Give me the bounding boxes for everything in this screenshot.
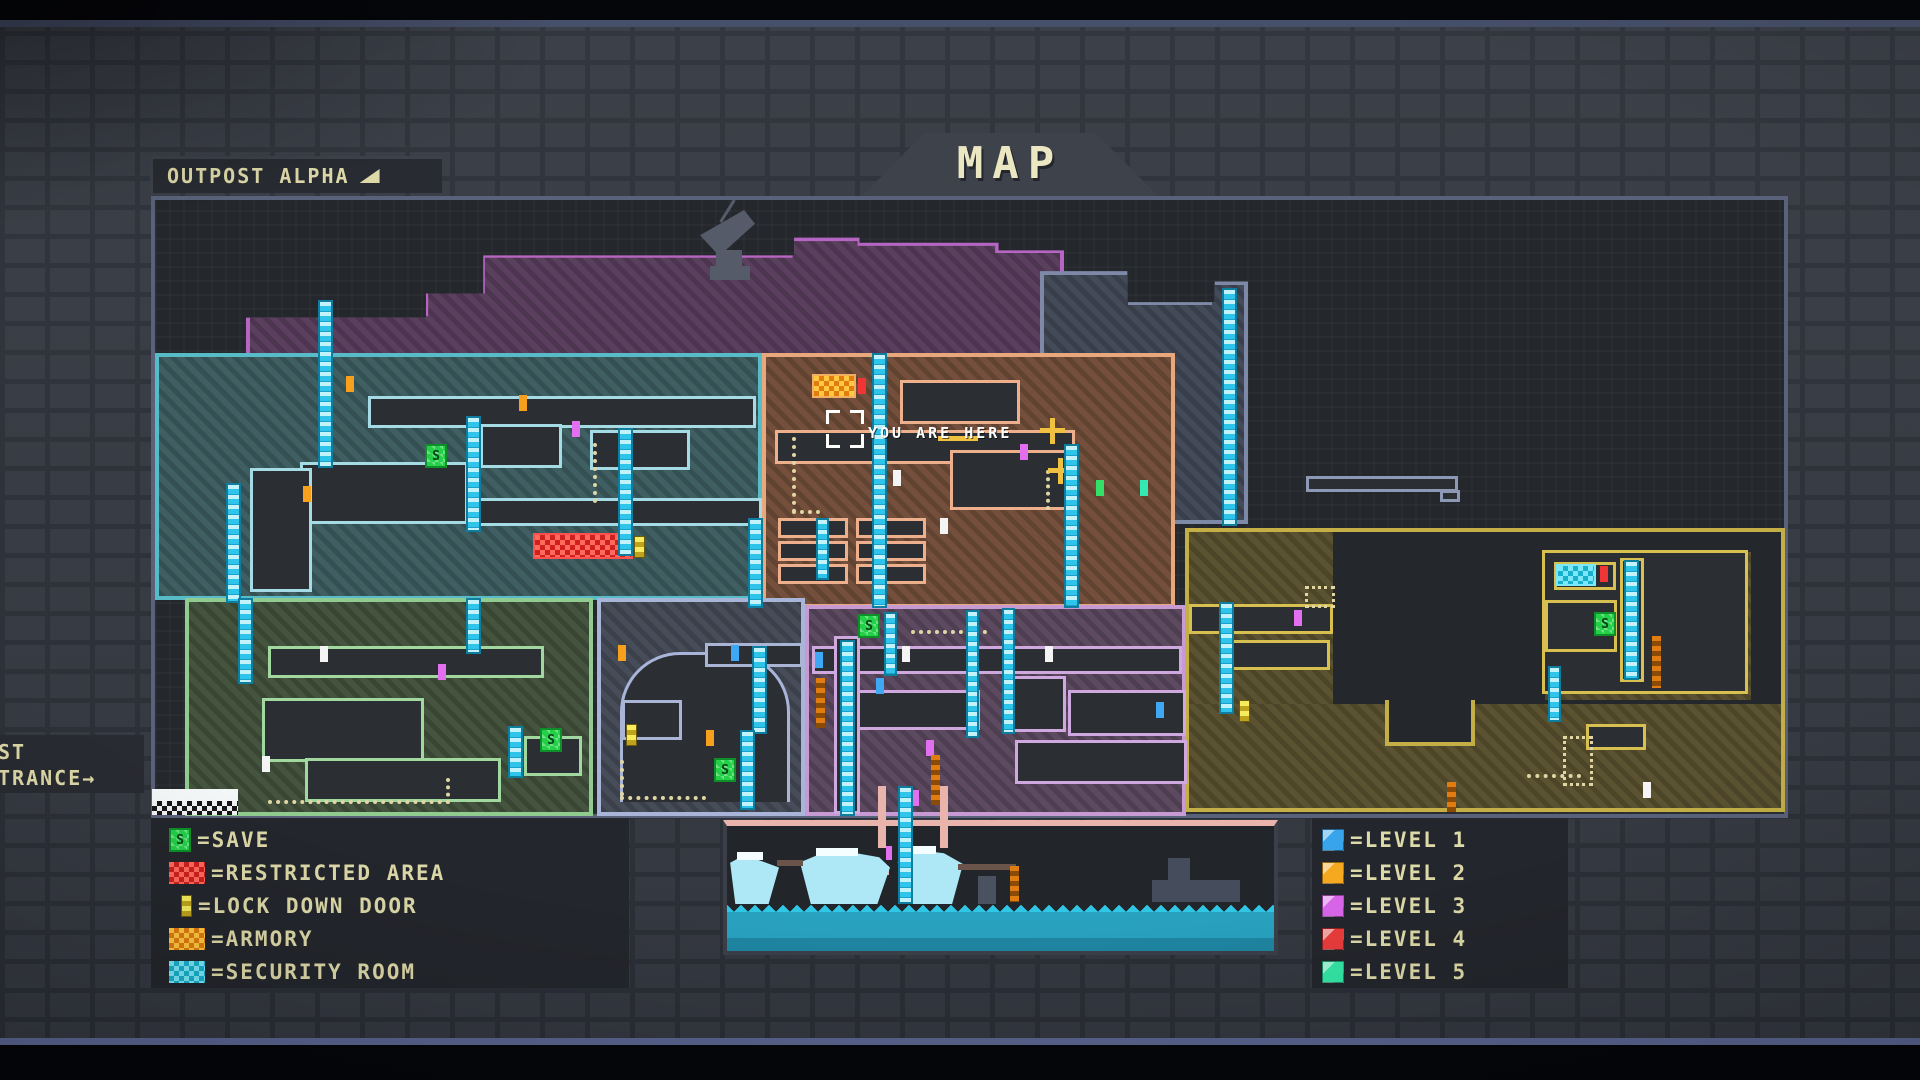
iceberg-cap <box>737 852 763 860</box>
dock-shaft-wall <box>940 786 948 848</box>
legend-item-level3: =LEVEL 3 <box>1322 894 1568 918</box>
door-gap <box>262 756 270 772</box>
door-level1 <box>731 645 739 661</box>
antenna-platform <box>1306 476 1458 492</box>
door-level2 <box>519 395 527 411</box>
save-point-icon: S <box>714 758 736 782</box>
ladder <box>226 483 241 603</box>
ladder <box>816 518 829 580</box>
lock-down-door-icon <box>181 895 192 917</box>
legend-label: =LEVEL 2 <box>1350 861 1467 885</box>
door-gap <box>1643 782 1651 798</box>
objective-marker <box>1040 428 1065 433</box>
door-gap <box>320 646 328 662</box>
east-canyon-floor <box>1189 704 1781 808</box>
dock-ladder <box>1010 866 1019 902</box>
service-pipe <box>1447 782 1456 812</box>
door-level3 <box>886 846 892 860</box>
door-gap <box>893 470 901 486</box>
door-level3 <box>1020 444 1028 460</box>
map-room <box>778 518 848 538</box>
ladder <box>1064 444 1079 608</box>
ladder <box>740 730 755 810</box>
route-path <box>593 443 597 503</box>
legend-label: =ARMORY <box>211 927 314 951</box>
entrance-label-line2: TRANCE→ <box>0 765 144 791</box>
map-room <box>856 541 926 561</box>
screen-top-accent <box>0 20 1920 27</box>
ladder <box>872 353 887 608</box>
save-point-icon: S <box>1594 612 1616 636</box>
map-room <box>850 690 980 730</box>
ladder <box>508 726 523 778</box>
map-room <box>262 698 424 762</box>
level3-swatch <box>1322 895 1344 917</box>
ladder <box>752 646 767 734</box>
dock-platform <box>777 860 803 866</box>
restricted-area-icon <box>169 862 205 884</box>
ladder <box>748 518 763 608</box>
iceberg <box>800 852 890 904</box>
screen-bottom-bar <box>0 1045 1920 1080</box>
door-level3 <box>572 421 580 437</box>
legend-item-armory: =ARMORY <box>169 927 629 951</box>
ladder <box>466 416 481 532</box>
door-gap <box>1045 646 1053 662</box>
door-gap <box>902 646 910 662</box>
ladder <box>840 640 855 816</box>
map-room <box>590 430 690 470</box>
screen-bottom-accent <box>0 1038 1920 1045</box>
legend-label: =LEVEL 4 <box>1350 927 1467 951</box>
door-level3 <box>438 664 446 680</box>
route-path <box>1046 470 1050 510</box>
door-level3 <box>926 740 934 756</box>
map-room <box>268 646 544 678</box>
legend-features-panel: S =SAVE =RESTRICTED AREA =LOCK DOWN DOOR… <box>151 818 629 988</box>
legend-item-level5: =LEVEL 5 <box>1322 960 1568 984</box>
save-point-icon: S <box>169 828 191 852</box>
save-point-icon: S <box>425 444 447 468</box>
level5-swatch <box>1322 961 1344 983</box>
game-map-screen: S S S S <box>0 0 1920 1080</box>
map-room <box>305 758 501 802</box>
door-level3 <box>1294 610 1302 626</box>
map-room <box>368 396 756 428</box>
map-room <box>300 462 468 524</box>
map-room <box>1068 690 1186 736</box>
ladder <box>318 300 333 468</box>
iceberg-cap <box>816 848 858 856</box>
legend-label: =LEVEL 3 <box>1350 894 1467 918</box>
legend-item-level4: =LEVEL 4 <box>1322 927 1568 951</box>
ladder <box>1002 608 1015 734</box>
ladder <box>238 598 253 684</box>
door-level5 <box>1140 480 1148 496</box>
door-save <box>1096 480 1104 496</box>
legend-label: =LEVEL 1 <box>1350 828 1467 852</box>
ladder <box>1219 602 1234 714</box>
route-loop <box>1305 586 1335 608</box>
map-room <box>778 564 848 584</box>
door-level1 <box>876 678 884 694</box>
map-room <box>480 424 562 468</box>
map-room <box>856 518 926 538</box>
map-room <box>1015 740 1187 784</box>
screen-top-bar <box>0 0 1920 20</box>
route-path <box>1527 774 1581 778</box>
zone-label-text: OUTPOST ALPHA <box>167 164 350 188</box>
zone-label: OUTPOST ALPHA <box>150 156 442 193</box>
antenna-platform-step <box>1440 490 1460 502</box>
ladder <box>898 786 913 904</box>
map-room <box>778 541 848 561</box>
route-path <box>620 796 706 800</box>
map-room <box>812 646 1182 674</box>
map-room <box>470 498 762 526</box>
door-level1 <box>1156 702 1164 718</box>
door-level4 <box>858 378 866 394</box>
lock-down-door <box>1239 700 1250 722</box>
legend-item-save: S =SAVE <box>169 828 629 852</box>
legend-item-level1: =LEVEL 1 <box>1322 828 1568 852</box>
service-pipe <box>816 678 825 728</box>
ladder <box>1624 560 1639 680</box>
ladder <box>884 612 897 676</box>
ladder <box>618 428 633 556</box>
mountain-icon <box>360 169 380 183</box>
door-level2 <box>618 645 626 661</box>
map-room <box>1230 640 1330 670</box>
dock-shaft-wall <box>878 786 886 848</box>
door-level2 <box>346 376 354 392</box>
service-pipe <box>1652 636 1661 688</box>
map-room <box>1189 604 1333 634</box>
lock-down-door <box>634 536 645 558</box>
level4-swatch <box>1322 928 1344 950</box>
route-path <box>446 778 450 804</box>
dock-platform <box>958 864 1016 870</box>
door-level2 <box>303 486 311 502</box>
legend-item-restricted: =RESTRICTED AREA <box>169 861 629 885</box>
legend-label: =SAVE <box>197 828 270 852</box>
lock-down-door <box>626 724 637 746</box>
legend-label: =LEVEL 5 <box>1350 960 1467 984</box>
armory <box>812 374 856 398</box>
entrance-label-line1: ST <box>0 739 144 765</box>
door-level1 <box>815 652 823 668</box>
service-pipe <box>931 755 940 805</box>
route-path <box>792 437 796 513</box>
map-room <box>1586 724 1646 750</box>
water-surface <box>727 898 1274 912</box>
you-are-here-label: YOU ARE HERE <box>868 424 1012 442</box>
entrance-label: ST TRANCE→ <box>0 735 144 793</box>
map-room <box>900 380 1020 424</box>
security-room <box>1556 564 1596 586</box>
ladder <box>466 598 481 654</box>
ladder <box>1222 288 1237 526</box>
water-band <box>727 912 1274 938</box>
route-path <box>620 760 624 796</box>
door-gap <box>940 518 948 534</box>
route-path <box>792 510 820 514</box>
route-path <box>268 800 450 804</box>
water-band-deep <box>727 938 1274 951</box>
ladder <box>1548 666 1561 722</box>
armory-icon <box>169 928 205 950</box>
legend-levels-panel: =LEVEL 1 =LEVEL 2 =LEVEL 3 =LEVEL 4 =LEV… <box>1312 818 1568 988</box>
ladder <box>966 610 979 738</box>
you-are-here-bracket <box>826 410 864 448</box>
route-loop <box>1563 736 1593 786</box>
save-point-icon: S <box>858 614 880 638</box>
save-point-icon: S <box>540 728 562 752</box>
map-room <box>950 450 1070 510</box>
legend-label: =SECURITY ROOM <box>211 960 416 984</box>
level1-swatch <box>1322 829 1344 851</box>
legend-item-lockdown: =LOCK DOWN DOOR <box>169 894 629 918</box>
satellite-dish-foot <box>710 266 750 280</box>
legend-item-level2: =LEVEL 2 <box>1322 861 1568 885</box>
door-level2 <box>706 730 714 746</box>
legend-label: =LOCK DOWN DOOR <box>198 894 418 918</box>
legend-label: =RESTRICTED AREA <box>211 861 445 885</box>
east-canyon-floor-notch <box>1385 700 1475 746</box>
entrance-checker <box>152 801 238 815</box>
entrance-landing <box>152 789 238 801</box>
map-room <box>856 564 926 584</box>
security-room-icon <box>169 961 205 983</box>
legend-item-security: =SECURITY ROOM <box>169 960 629 984</box>
door-level4 <box>1600 566 1608 582</box>
submarine-sail <box>1168 858 1190 882</box>
page-title: MAP <box>862 138 1158 189</box>
level2-swatch <box>1322 862 1344 884</box>
